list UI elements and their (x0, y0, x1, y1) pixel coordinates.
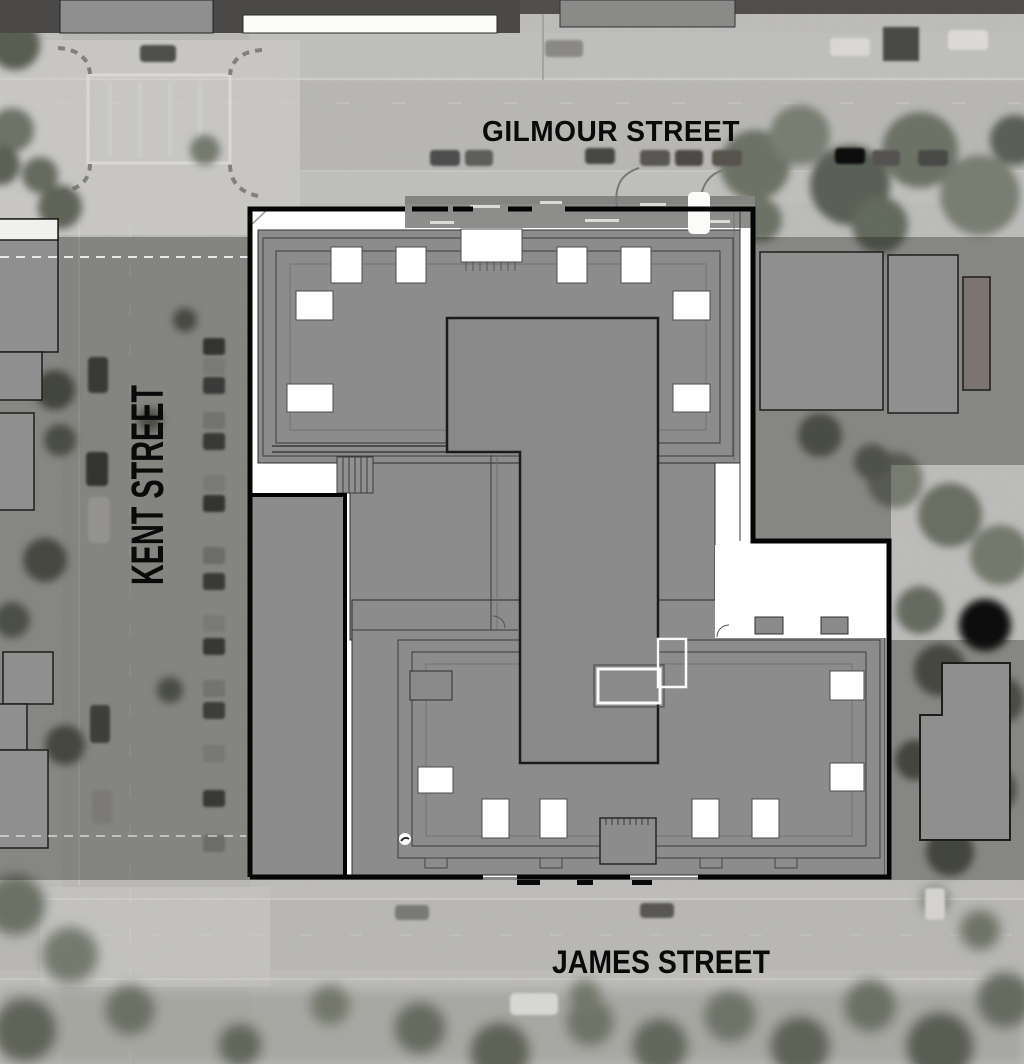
annex-building (248, 495, 345, 875)
site-plan-canvas: GILMOUR STREET KENT STREET JAMES STREET (0, 0, 1024, 1064)
site-marker (399, 833, 411, 845)
entrance-canopy-roof (461, 229, 522, 262)
gilmour-street-label: GILMOUR STREET (482, 116, 740, 148)
context-building (60, 0, 213, 33)
rear-courtyard (715, 545, 887, 638)
kent-street-label: KENT STREET (122, 385, 173, 585)
james-street-label: JAMES STREET (552, 944, 770, 980)
parked-vehicle-white (688, 192, 710, 234)
site-plan-svg: GILMOUR STREET KENT STREET JAMES STREET (0, 0, 1024, 1064)
south-entrance (600, 818, 656, 864)
stair-hatch (337, 457, 373, 493)
context-building-white (243, 15, 497, 33)
context-building (560, 0, 735, 27)
